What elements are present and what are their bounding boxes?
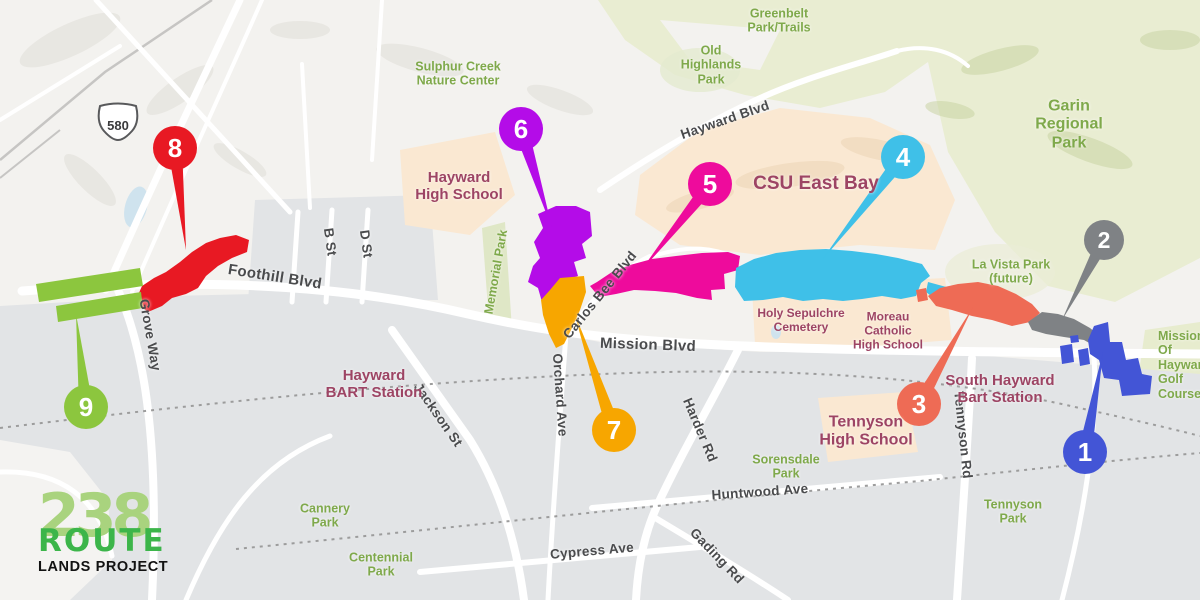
highway-shield-label: 580 [107,118,129,133]
parcel-1c[interactable] [1078,348,1090,366]
parcel-1d[interactable] [1070,335,1079,343]
marker-6-number: 6 [514,114,528,144]
marker-2-number: 2 [1098,227,1111,253]
marker-3-number: 3 [912,389,926,419]
marker-9-number: 9 [79,392,93,422]
marker-4-number: 4 [896,142,911,172]
logo-subtitle: LANDS PROJECT [38,560,168,575]
marker-7-number: 7 [607,415,621,445]
map-canvas: 580 8 [0,0,1200,600]
parcel-3b[interactable] [916,288,928,302]
logo-route-text: ROUTE [38,526,168,557]
marker-8-number: 8 [168,133,182,163]
logo: 238 ROUTE LANDS PROJECT [38,486,168,575]
parcel-1b[interactable] [1060,344,1074,364]
map-graphics: 580 8 [0,0,1200,600]
marker-1-number: 1 [1078,437,1092,467]
marker-5-number: 5 [703,169,717,199]
